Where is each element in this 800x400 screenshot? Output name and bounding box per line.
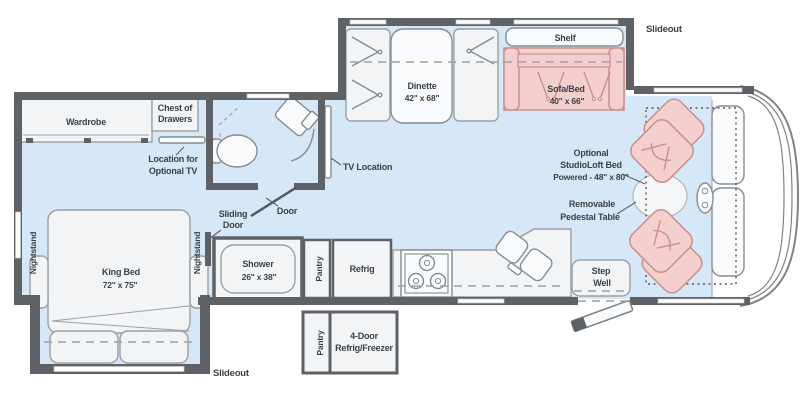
window [350, 20, 386, 24]
dinette [346, 29, 498, 123]
pantry-lower-label: Pantry [315, 330, 325, 356]
wardrobe-bracket [84, 138, 91, 143]
wardrobe-bracket [26, 138, 33, 143]
shower-label: Shower [242, 259, 274, 269]
sliding-door-bar [205, 232, 211, 266]
chest-label-1: Chest of [158, 103, 194, 113]
console-cupholder [697, 183, 713, 213]
studioloft-label-1: Optional [574, 148, 609, 158]
shelf-label: Shelf [554, 33, 576, 43]
belt-dot [467, 49, 471, 53]
tv-location-label: TV Location [343, 162, 392, 172]
chest-label-2: Drawers [158, 114, 192, 124]
belt-dot [378, 50, 382, 54]
burner [420, 256, 435, 271]
bed-cushion-left [50, 331, 118, 363]
king-bed-size-label: 72" x 75" [103, 280, 138, 290]
dinette-table [391, 29, 452, 123]
slideout-top-label: Slideout [646, 24, 683, 35]
window [456, 20, 490, 24]
sofa-bed-size-label: 40" x 66" [550, 96, 585, 106]
rv-floorplan: Slideout Slideout Wardrobe Chest of Draw… [0, 0, 800, 400]
sofa-arm-left [504, 48, 519, 110]
belt-dot [378, 93, 382, 97]
sliding-door-label-2: Door [223, 220, 244, 230]
sofa-arm-right [609, 48, 624, 110]
bath-wall-bottom-left [206, 183, 258, 190]
dinette-label: Dinette [407, 81, 436, 91]
dinette-bench-right [454, 29, 498, 121]
studioloft-label-2: StudioLoft Bed [560, 160, 622, 170]
nightstand-right-label: Nightstand [192, 232, 202, 274]
wardrobe-label: Wardrobe [66, 117, 106, 127]
nightstand-left-label: Nightstand [28, 232, 38, 274]
sofa-bed-label: Sofa/Bed [547, 84, 584, 94]
window [247, 94, 289, 98]
shower-size-label: 26" x 38" [242, 272, 277, 282]
dinette-bench-left [346, 29, 390, 121]
bath-wall-left [206, 94, 213, 190]
window [16, 212, 21, 258]
sliding-door-label-1: Sliding [219, 209, 248, 219]
window [54, 367, 184, 372]
dash-panel-lower [712, 188, 744, 276]
dash-panel-upper [712, 106, 744, 184]
window [514, 20, 618, 24]
bed-cushion-right [120, 331, 188, 363]
four-door-label-1: 4-Door [350, 331, 378, 341]
four-door-label-2: Refrig/Freezer [335, 343, 393, 353]
top-slideout-wall-left [338, 18, 346, 100]
bed-slideout-wall-left [30, 295, 40, 374]
sofa-leg-dot [598, 97, 601, 100]
pantry-label: Pantry [314, 256, 324, 282]
studioloft-label-3: Powered - 48" x 80" [553, 172, 629, 182]
wall-top-left [14, 92, 344, 100]
toilet [212, 135, 257, 167]
pedestal-table-label-2: Pedestal Table [560, 212, 620, 222]
pedestal-table-label-1: Removable [569, 199, 615, 209]
top-slideout-wall-right [626, 18, 634, 90]
shower-pan [221, 245, 295, 293]
wall-left [14, 92, 22, 305]
optional-tv-label-1: Location for [148, 154, 198, 164]
entry-door-open [571, 300, 633, 332]
stove [401, 250, 452, 297]
king-bed-label: King Bed [102, 267, 140, 277]
refrig-label: Refrig [350, 264, 375, 274]
slideout-bottom-label: Slideout [213, 368, 250, 379]
wardrobe-bracket [141, 138, 148, 143]
bath-wall-bottom-right [294, 183, 325, 190]
bed-slideout-wall-right [200, 295, 210, 374]
bath-wall-right [318, 94, 325, 190]
toilet-bowl [217, 135, 257, 167]
door-label: Door [277, 206, 298, 216]
sofa-leg-dot [592, 97, 595, 100]
optional-tv-bar [159, 137, 205, 143]
floorplan-canvas: Slideout Slideout Wardrobe Chest of Draw… [0, 0, 800, 400]
window [458, 299, 504, 303]
sofa-back-band [518, 54, 610, 67]
step-well-label-1: Step [592, 266, 611, 276]
optional-tv-label-2: Optional TV [149, 166, 197, 176]
dinette-size-label: 42" x 68" [405, 93, 440, 103]
step-well-label-2: Well [593, 278, 611, 288]
window [658, 299, 744, 303]
wall-bottom-main [198, 297, 578, 305]
tv-location-bar [325, 106, 331, 178]
window [654, 88, 742, 92]
